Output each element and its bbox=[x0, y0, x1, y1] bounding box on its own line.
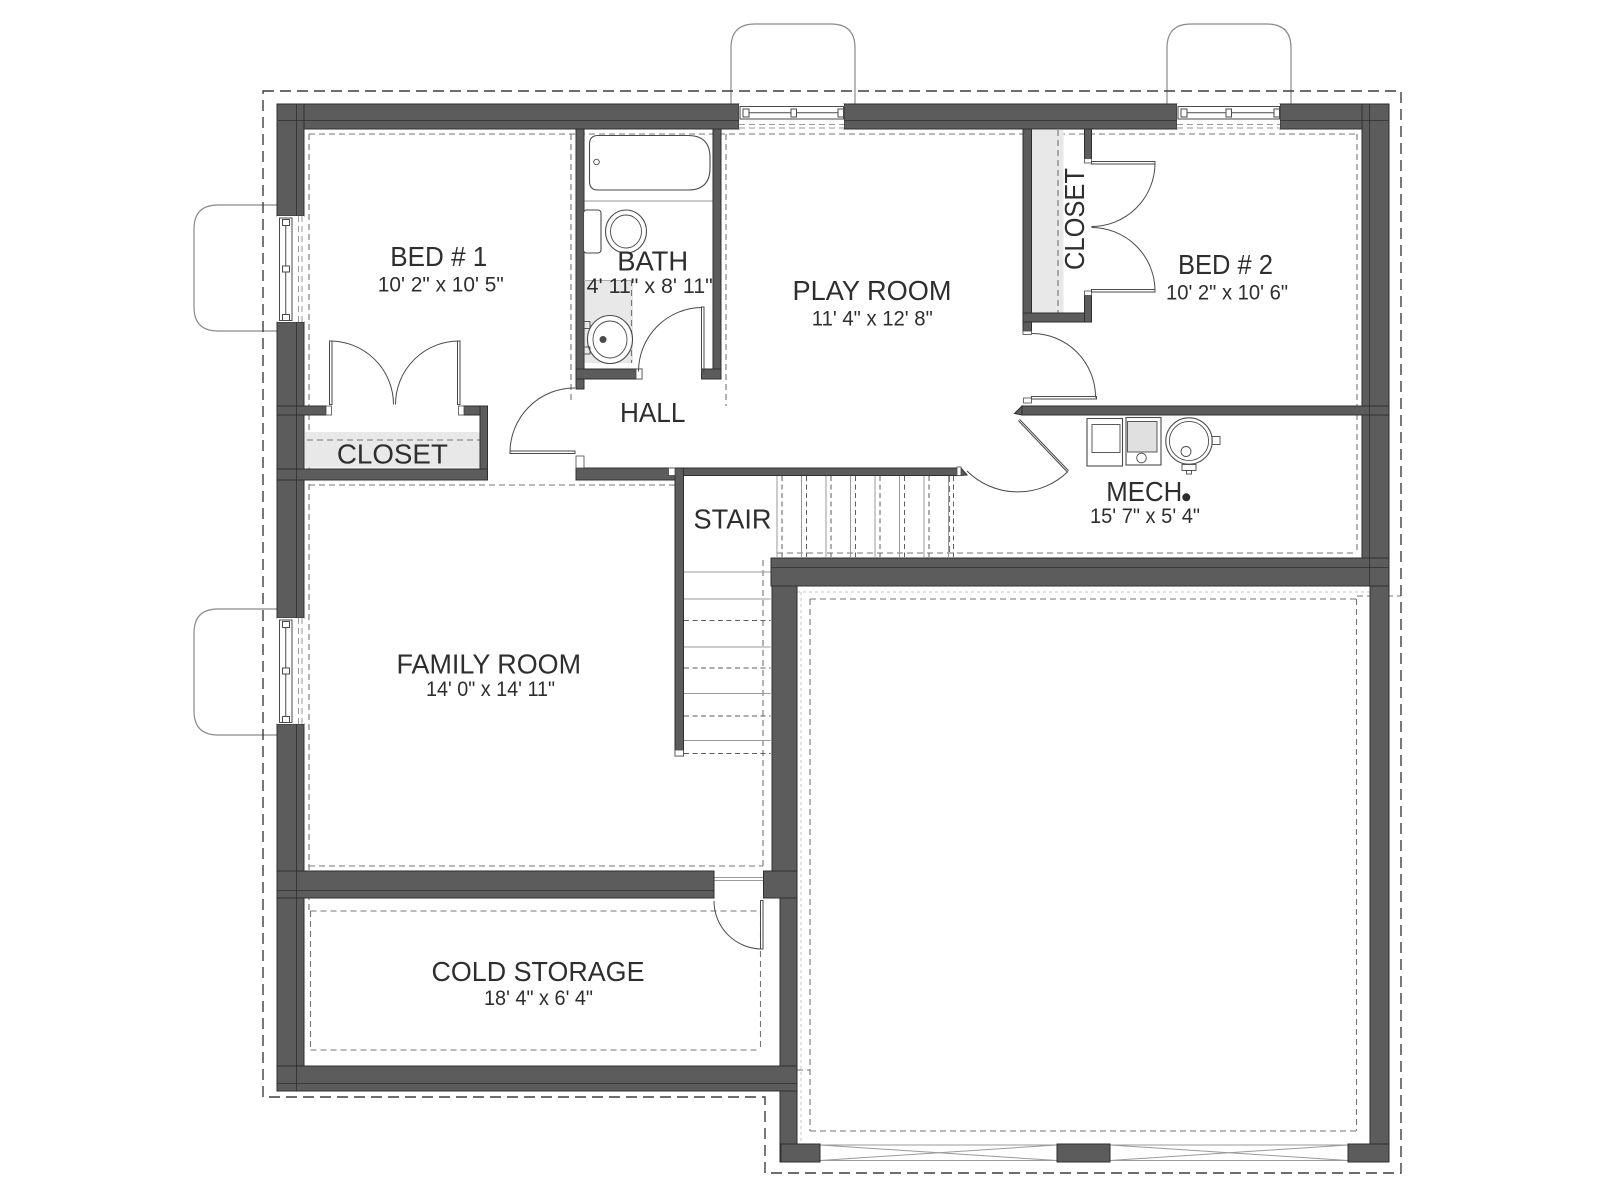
svg-text:BED # 1: BED # 1 bbox=[390, 241, 487, 272]
svg-text:BATH: BATH bbox=[617, 246, 688, 277]
svg-text:4' 11" x 8' 11": 4' 11" x 8' 11" bbox=[587, 275, 713, 298]
svg-text:10' 2" x 10' 5": 10' 2" x 10' 5" bbox=[378, 273, 504, 296]
svg-text:11' 4" x 12' 8": 11' 4" x 12' 8" bbox=[812, 308, 933, 331]
svg-text:FAMILY ROOM: FAMILY ROOM bbox=[397, 649, 582, 680]
svg-text:PLAY ROOM: PLAY ROOM bbox=[793, 275, 952, 306]
svg-text:HALL: HALL bbox=[620, 397, 686, 428]
svg-text:10' 2" x 10' 6": 10' 2" x 10' 6" bbox=[1166, 282, 1288, 305]
svg-text:MECH: MECH bbox=[1106, 476, 1182, 507]
svg-text:18' 4" x 6' 4": 18' 4" x 6' 4" bbox=[484, 987, 593, 1010]
svg-text:CLOSET: CLOSET bbox=[1059, 168, 1090, 270]
svg-text:15' 7" x 5' 4": 15' 7" x 5' 4" bbox=[1090, 505, 1200, 528]
svg-text:CLOSET: CLOSET bbox=[337, 438, 448, 469]
svg-text:14' 0" x 14' 11": 14' 0" x 14' 11" bbox=[426, 678, 555, 701]
svg-text:STAIR: STAIR bbox=[694, 503, 772, 534]
svg-text:COLD STORAGE: COLD STORAGE bbox=[432, 956, 645, 987]
svg-text:BED # 2: BED # 2 bbox=[1178, 249, 1273, 280]
